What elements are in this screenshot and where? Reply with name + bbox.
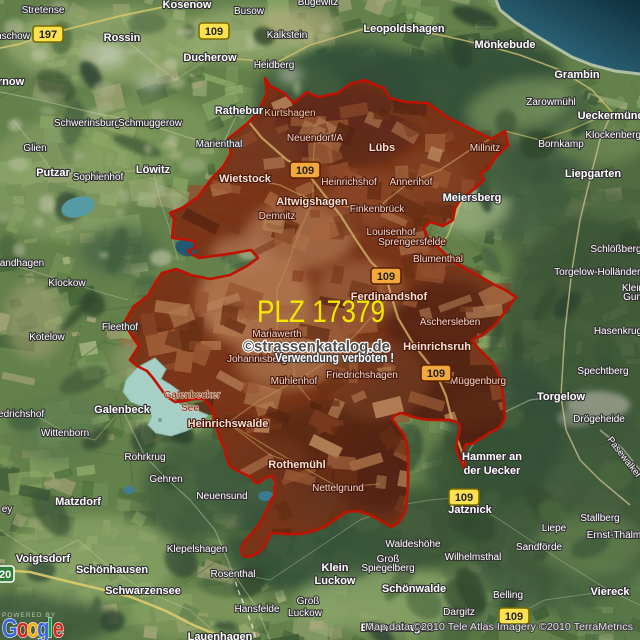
svg-text:Fleethof: Fleethof bbox=[102, 322, 138, 333]
svg-text:Löwitz: Löwitz bbox=[136, 164, 171, 176]
svg-text:Ernst-Thälm: Ernst-Thälm bbox=[587, 530, 640, 541]
svg-text:Leopoldshagen: Leopoldshagen bbox=[363, 23, 445, 35]
svg-text:Grambin: Grambin bbox=[554, 69, 600, 81]
svg-text:Viereck: Viereck bbox=[591, 586, 631, 598]
svg-text:Torgelow-Holländere: Torgelow-Holländere bbox=[554, 267, 640, 278]
svg-text:Blumenthal: Blumenthal bbox=[413, 254, 463, 265]
svg-text:109: 109 bbox=[427, 368, 445, 380]
svg-text:rnow: rnow bbox=[0, 76, 25, 88]
svg-text:Müggenburg: Müggenburg bbox=[450, 376, 506, 387]
svg-text:Kalkstein: Kalkstein bbox=[267, 30, 308, 41]
svg-text:Gum: Gum bbox=[623, 292, 640, 303]
svg-text:Neuendorf/A: Neuendorf/A bbox=[287, 133, 343, 144]
svg-text:andhagen: andhagen bbox=[0, 258, 44, 269]
svg-text:Ducherow: Ducherow bbox=[183, 52, 237, 64]
svg-text:Schwarzensee: Schwarzensee bbox=[105, 585, 181, 597]
svg-text:Friedrichshagen: Friedrichshagen bbox=[326, 370, 398, 381]
svg-text:Glien: Glien bbox=[23, 143, 46, 154]
svg-text:iedrichshof: iedrichshof bbox=[0, 409, 44, 420]
svg-text:Map data ©2010 Tele Atlas Ima: Map data ©2010 Tele Atlas Imagery ©2010 … bbox=[365, 621, 633, 633]
svg-text:Annenhof: Annenhof bbox=[390, 177, 433, 188]
svg-text:Sandförde: Sandförde bbox=[516, 542, 563, 553]
svg-text:Dargitz: Dargitz bbox=[443, 607, 475, 618]
svg-text:Spiegelberg: Spiegelberg bbox=[361, 563, 414, 574]
svg-text:Schwerinsburg: Schwerinsburg bbox=[54, 118, 120, 129]
svg-text:109: 109 bbox=[205, 26, 223, 38]
svg-text:109: 109 bbox=[377, 271, 395, 283]
svg-text:Sophienhof: Sophienhof bbox=[73, 172, 124, 183]
svg-text:Rosenthal: Rosenthal bbox=[210, 569, 255, 580]
svg-text:Voigtsdorf: Voigtsdorf bbox=[16, 553, 71, 565]
svg-text:Millnitz: Millnitz bbox=[470, 143, 501, 154]
svg-text:Heinrichswalde: Heinrichswalde bbox=[188, 418, 269, 430]
svg-text:Heinrichshof: Heinrichshof bbox=[321, 177, 377, 188]
svg-text:Klepelshagen: Klepelshagen bbox=[167, 544, 228, 555]
svg-text:Rathebur: Rathebur bbox=[215, 105, 264, 117]
svg-text:e: e bbox=[53, 614, 64, 640]
svg-text:l: l bbox=[47, 614, 53, 640]
svg-text:Aschersleben: Aschersleben bbox=[420, 317, 481, 328]
svg-text:Wietstock: Wietstock bbox=[219, 173, 272, 185]
svg-text:Sprengersfelde: Sprengersfelde bbox=[378, 237, 446, 248]
svg-text:Lübs: Lübs bbox=[369, 142, 395, 154]
svg-text:Gehren: Gehren bbox=[149, 474, 182, 485]
svg-text:Heidberg: Heidberg bbox=[254, 60, 295, 71]
svg-text:Mühlenhof: Mühlenhof bbox=[271, 376, 318, 387]
svg-text:109: 109 bbox=[296, 165, 314, 177]
svg-text:Luckow: Luckow bbox=[315, 575, 356, 587]
svg-text:Torgelow: Torgelow bbox=[537, 391, 586, 403]
svg-text:Mönkebude: Mönkebude bbox=[474, 39, 535, 51]
svg-text:Bornkamp: Bornkamp bbox=[538, 139, 584, 150]
svg-text:Bugewitz: Bugewitz bbox=[298, 0, 339, 8]
svg-text:Klockow: Klockow bbox=[48, 278, 86, 289]
svg-text:nschow: nschow bbox=[0, 31, 31, 42]
svg-text:Schönhausen: Schönhausen bbox=[76, 564, 148, 576]
svg-text:Finkenbrück: Finkenbrück bbox=[350, 204, 405, 215]
svg-text:Hammer an: Hammer an bbox=[462, 451, 522, 463]
svg-text:Lauenhagen: Lauenhagen bbox=[188, 631, 253, 640]
svg-text:Rossin: Rossin bbox=[104, 32, 141, 44]
svg-text:Ueckermünde: Ueckermünde bbox=[578, 110, 640, 122]
svg-text:Schönwalde: Schönwalde bbox=[382, 583, 446, 595]
svg-text:Stretense: Stretense bbox=[22, 5, 65, 16]
svg-text:Spechtberg: Spechtberg bbox=[577, 366, 628, 377]
svg-text:Neuensund: Neuensund bbox=[196, 491, 247, 502]
svg-text:Klein: Klein bbox=[322, 562, 349, 574]
svg-text:Kotelow: Kotelow bbox=[29, 332, 65, 343]
svg-text:197: 197 bbox=[39, 29, 57, 41]
svg-text:Groß: Groß bbox=[297, 596, 320, 607]
svg-text:Nettelgrund: Nettelgrund bbox=[312, 483, 364, 494]
svg-text:Marienthal: Marienthal bbox=[196, 139, 243, 150]
svg-text:Luckow: Luckow bbox=[288, 608, 323, 619]
svg-text:Matzdorf: Matzdorf bbox=[55, 496, 101, 508]
svg-text:Rothemühl: Rothemühl bbox=[268, 459, 325, 471]
svg-text:Altwigshagen: Altwigshagen bbox=[276, 196, 348, 208]
svg-text:Meiersberg: Meiersberg bbox=[443, 192, 502, 204]
svg-text:Heinrichsruh: Heinrichsruh bbox=[403, 341, 471, 353]
svg-text:Kurtshagen: Kurtshagen bbox=[264, 108, 315, 119]
svg-text:G: G bbox=[2, 614, 18, 640]
svg-text:Galenbeck: Galenbeck bbox=[94, 404, 151, 416]
svg-text:Wilhelmsthal: Wilhelmsthal bbox=[445, 552, 502, 563]
svg-text:der Uecker: der Uecker bbox=[464, 465, 522, 477]
svg-text:Liepgarten: Liepgarten bbox=[565, 168, 622, 180]
svg-text:109: 109 bbox=[455, 492, 473, 504]
svg-text:PLZ 17379: PLZ 17379 bbox=[257, 293, 385, 329]
svg-text:Busow: Busow bbox=[234, 6, 265, 17]
svg-text:Stallberg: Stallberg bbox=[580, 513, 619, 524]
svg-text:Waldeshöhe: Waldeshöhe bbox=[385, 539, 441, 550]
svg-text:Rohrkrug: Rohrkrug bbox=[124, 452, 165, 463]
svg-text:Hasenkrug: Hasenkrug bbox=[594, 326, 640, 337]
svg-text:Schlößberg: Schlößberg bbox=[590, 244, 640, 255]
svg-text:Demnitz: Demnitz bbox=[259, 211, 296, 222]
svg-text:ey: ey bbox=[2, 504, 13, 515]
svg-text:Wittenborn: Wittenborn bbox=[41, 428, 89, 439]
svg-text:Galenbecker: Galenbecker bbox=[164, 390, 221, 401]
svg-text:See: See bbox=[181, 403, 199, 414]
svg-text:Putzar: Putzar bbox=[36, 167, 70, 179]
svg-text:Schmuggerow: Schmuggerow bbox=[118, 118, 183, 129]
svg-text:Verwendung verboten !: Verwendung verboten ! bbox=[275, 350, 394, 365]
svg-text:Klockenberge: Klockenberge bbox=[585, 130, 640, 141]
svg-text:Drögeheide: Drögeheide bbox=[573, 414, 625, 425]
svg-text:Zarowmühl: Zarowmühl bbox=[526, 97, 575, 108]
svg-text:Liepe: Liepe bbox=[542, 523, 567, 534]
svg-text:Kosenow: Kosenow bbox=[163, 0, 212, 11]
svg-text:Belling: Belling bbox=[493, 590, 523, 601]
svg-text:120: 120 bbox=[0, 569, 11, 581]
svg-text:Hansfelde: Hansfelde bbox=[234, 604, 279, 615]
